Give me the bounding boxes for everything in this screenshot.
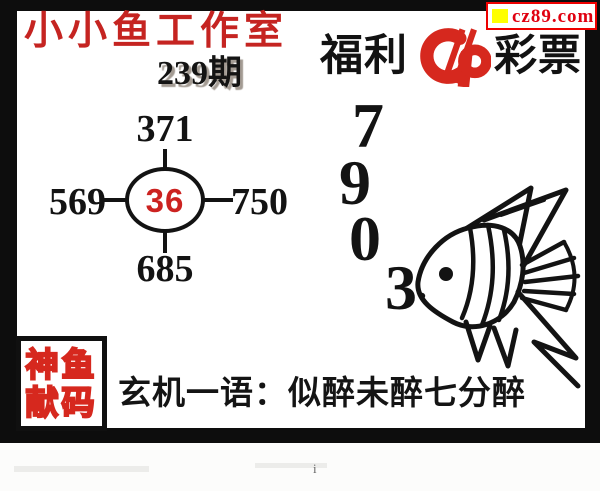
seal-box: 神鱼 献码: [16, 336, 107, 431]
brand-suffix-label: 彩票: [494, 35, 582, 78]
footer-strip: i: [0, 443, 600, 491]
cross-number-right: 750: [231, 183, 321, 221]
site-badge-text: cz89.com: [512, 7, 594, 26]
connector-line-right: [203, 198, 233, 202]
connector-line-bottom: [163, 230, 167, 253]
welfare-lottery-brand: 福利 彩票: [320, 27, 582, 85]
cross-number-left: 569: [26, 183, 106, 221]
studio-title: 小小鱼工作室: [24, 12, 288, 51]
site-badge-link[interactable]: cz89.com: [486, 2, 597, 30]
center-circle: 36: [125, 167, 205, 233]
issue-number: 239期: [157, 57, 242, 91]
connector-line-left: [104, 198, 127, 202]
brand-prefix-label: 福利: [320, 35, 408, 78]
center-number: 36: [146, 184, 185, 217]
big-digit-3: 0: [349, 207, 381, 271]
lottery-poster: 小小鱼工作室 239期 福利 彩票 cz89.com 371 569 750 6…: [0, 0, 600, 491]
cross-number-top: 371: [115, 110, 215, 148]
seal-line-2: 献码: [26, 384, 98, 422]
mystery-phrase: 玄机一语：似醉未醉七分醉: [118, 378, 526, 411]
cross-number-bottom: 685: [115, 250, 215, 288]
yellow-square-icon: [492, 9, 508, 23]
seal-line-1: 神鱼: [26, 346, 98, 384]
footer-smudge: [14, 466, 149, 472]
welfare-lottery-logo: [411, 25, 491, 87]
footer-mark: i: [313, 461, 317, 477]
